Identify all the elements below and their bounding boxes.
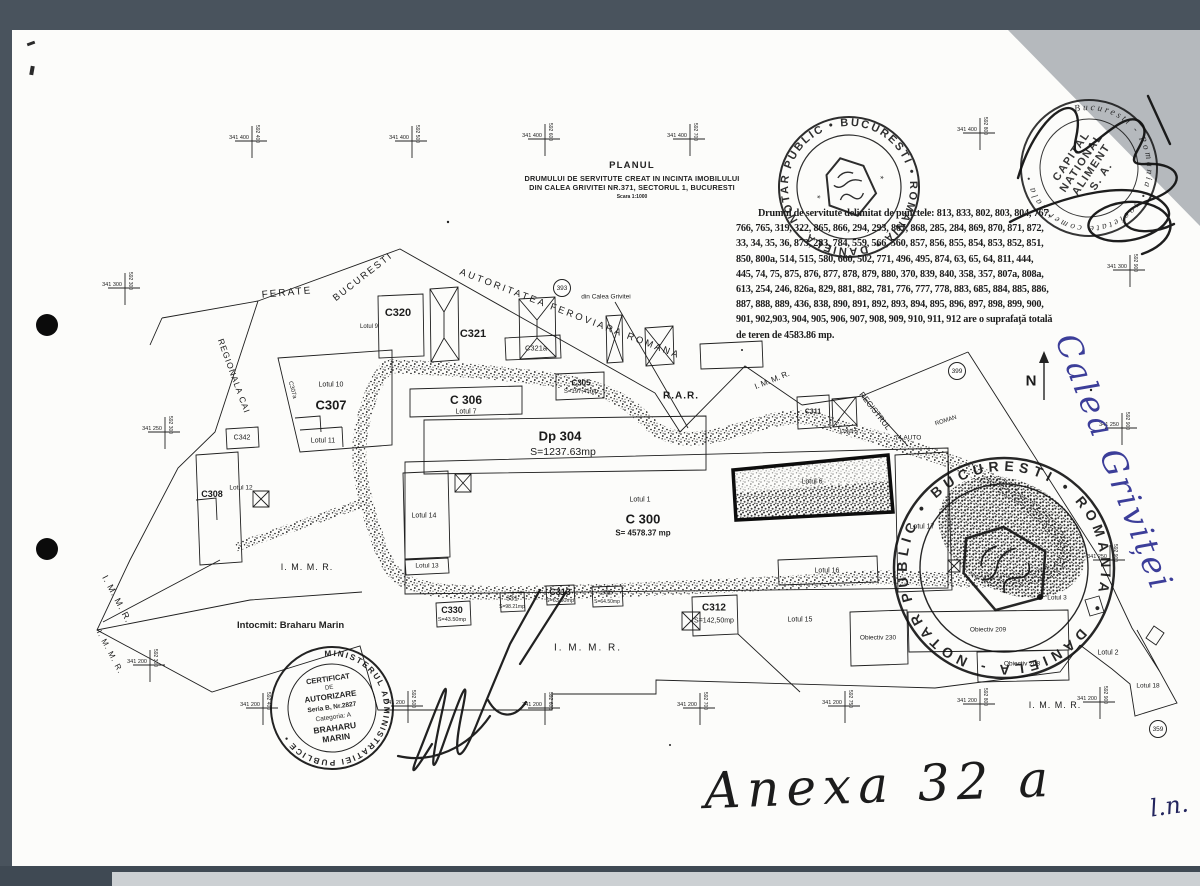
svg-text:592 750: 592 750: [847, 690, 853, 708]
svg-text:592 800: 592 800: [982, 117, 988, 135]
svg-text:592 700: 592 700: [692, 123, 698, 141]
handwritten-corner-initials: l.n.: [1148, 789, 1190, 822]
north-arrow-icon: [1039, 351, 1049, 400]
svg-text:592 700: 592 700: [702, 692, 708, 710]
svg-text:592 300: 592 300: [152, 649, 158, 667]
svg-text:341 400: 341 400: [389, 135, 409, 141]
svg-text:341 200: 341 200: [677, 702, 697, 708]
svg-text:341 200: 341 200: [957, 698, 977, 704]
svg-text:341 200: 341 200: [127, 659, 147, 665]
servitude-line: 850, 800a, 514, 515, 580, 660, 502, 771,…: [736, 252, 1052, 267]
servitude-line: 766, 765, 319, 322, 865, 866, 294, 293, …: [736, 221, 1052, 236]
servitude-line: 33, 34, 35, 36, 873, 283, 784, 559, 566,…: [736, 236, 1052, 251]
svg-text:341 400: 341 400: [522, 133, 542, 139]
servitude-description: Drumul de servitute delimitat de punctel…: [736, 206, 1052, 343]
svg-text:592 600: 592 600: [547, 123, 553, 141]
certificate-line: DE: [325, 685, 334, 692]
stamp-star: *: [878, 171, 885, 182]
svg-text:592 500: 592 500: [414, 125, 420, 143]
lot6-highlight: [733, 455, 893, 520]
servitude-line: de teren de 4583.86 mp.: [736, 328, 1052, 343]
scanned-document: 341 400592 400341 400592 500341 400592 6…: [0, 0, 1200, 886]
svg-text:592 300: 592 300: [127, 272, 133, 290]
signature-scribble-bottom: [398, 590, 566, 770]
servitude-line: 613, 254, 246, 826a, 829, 881, 882, 781,…: [736, 282, 1052, 297]
svg-text:592 600: 592 600: [547, 692, 553, 710]
servitude-line: 445, 74, 75, 875, 876, 877, 878, 879, 88…: [736, 267, 1052, 282]
svg-text:592 900: 592 900: [1102, 686, 1108, 704]
certificate-line: CERTIFICAT: [305, 671, 350, 686]
servitude-line: Drumul de servitute delimitat de punctel…: [736, 206, 1052, 221]
handwritten-annex-label: Anexa 32 a: [703, 750, 1056, 820]
servitude-line: 887, 888, 889, 436, 838, 890, 891, 892, …: [736, 297, 1052, 312]
svg-text:592 900: 592 900: [1132, 254, 1138, 272]
circled-point-number: 359: [1149, 720, 1167, 738]
svg-text:341 400: 341 400: [229, 135, 249, 141]
svg-text:592 400: 592 400: [254, 125, 260, 143]
svg-text:341 200: 341 200: [1077, 696, 1097, 702]
svg-text:341 400: 341 400: [957, 127, 977, 133]
svg-text:592 500: 592 500: [410, 690, 416, 708]
svg-text:592 800: 592 800: [982, 688, 988, 706]
svg-text:592 300: 592 300: [167, 416, 173, 434]
svg-text:341 400: 341 400: [667, 133, 687, 139]
svg-text:341 300: 341 300: [102, 282, 122, 288]
svg-text:341 300: 341 300: [1107, 264, 1127, 270]
servitude-road-band: [236, 366, 1107, 622]
stamp-star: *: [815, 190, 822, 201]
servitude-line: 901, 902,903, 904, 905, 906, 907, 908, 9…: [736, 312, 1052, 327]
circled-point-number: 393: [553, 279, 571, 297]
author-note: Intocmit: Braharu Marin: [237, 620, 344, 631]
certificate-stamp: MINISTERUL ADMINISTRATIEI PUBLICE • CERT…: [263, 639, 401, 777]
svg-text:341 250: 341 250: [142, 426, 162, 432]
svg-text:341 200: 341 200: [822, 700, 842, 706]
svg-text:341 200: 341 200: [240, 702, 260, 708]
svg-text:592 900: 592 900: [1124, 412, 1130, 430]
circled-point-number: 399: [948, 362, 966, 380]
